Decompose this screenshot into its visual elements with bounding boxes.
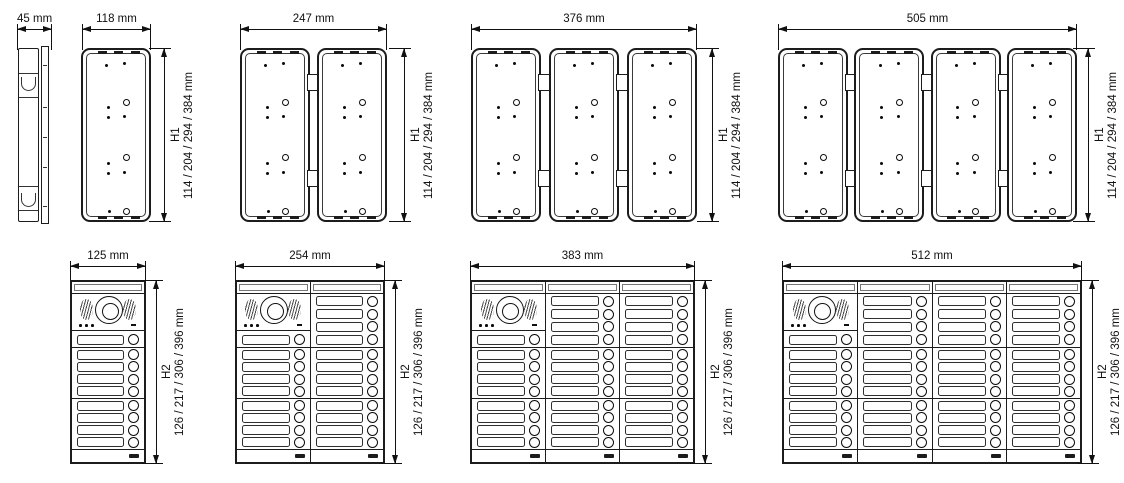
knockout-mark [677, 216, 686, 219]
led-indicators [244, 324, 259, 327]
name-plate [863, 386, 911, 396]
call-button [529, 400, 540, 411]
camera-lens-icon [260, 296, 288, 324]
knockout-mark [367, 51, 376, 54]
panel-top-strip [933, 282, 1006, 294]
name-plate [863, 425, 911, 435]
knockout-mark [1040, 51, 1049, 54]
button-section [237, 348, 310, 399]
call-button-row [472, 361, 545, 372]
call-button [603, 321, 614, 332]
led-dot-icon [91, 324, 94, 327]
name-plate [551, 309, 599, 319]
name-plate [863, 401, 911, 411]
call-button-row [311, 309, 384, 320]
panel-bottom-strip [620, 450, 693, 462]
call-button-row [237, 412, 310, 423]
dimension-line [17, 29, 52, 30]
name-plate [789, 413, 837, 423]
screw-ring-hole [669, 99, 676, 106]
knockout-mark [334, 216, 343, 219]
knockout-mark [811, 216, 820, 219]
box-inner-frame [554, 53, 614, 217]
camera-column [72, 282, 144, 462]
call-button [841, 361, 852, 372]
single-button-section [237, 331, 310, 348]
knockout-mark [98, 216, 107, 219]
height-label: H2 [710, 280, 723, 464]
call-button [1064, 349, 1075, 360]
fixing-hole [267, 210, 270, 213]
call-button [677, 334, 688, 345]
call-button-row [933, 412, 1006, 423]
call-button [990, 296, 1001, 307]
name-plate [316, 437, 364, 447]
knockout-mark [887, 216, 896, 219]
call-button-row [858, 334, 931, 345]
flush-mount-box [317, 48, 387, 222]
screw-ring-hole [282, 154, 289, 161]
call-button-row [933, 386, 1006, 397]
call-button [677, 361, 688, 372]
call-button [367, 361, 378, 372]
call-button-row [311, 334, 384, 345]
call-button [841, 425, 852, 436]
fixing-hole [879, 64, 882, 67]
fixing-hole [123, 115, 126, 118]
fixing-hole [973, 171, 976, 174]
single-button-section [472, 331, 545, 348]
brand-logo-mark [530, 454, 540, 458]
call-button [1064, 374, 1075, 385]
call-button-row [546, 361, 619, 372]
call-button-row [620, 400, 693, 411]
height-values-label: 126 / 217 / 306 / 396 mm [413, 280, 426, 464]
call-button-row [546, 374, 619, 385]
call-button [603, 400, 614, 411]
call-button [916, 374, 927, 385]
call-button-row [311, 349, 384, 360]
call-button-row [784, 437, 857, 448]
led-dot-icon [491, 324, 494, 327]
name-plate [477, 335, 525, 345]
dimension-label: 45 mm [17, 13, 52, 26]
knockout-mark [947, 51, 956, 54]
call-button-row [858, 309, 931, 320]
knockout-mark [504, 51, 513, 54]
dimension-line [82, 29, 151, 30]
camera-lens-icon [808, 296, 836, 324]
name-plate [551, 386, 599, 396]
call-button-row [933, 437, 1006, 448]
call-button-row [933, 296, 1006, 307]
name-plate [938, 401, 986, 411]
name-plate [625, 386, 673, 396]
screw-ring-hole [282, 208, 289, 215]
led-dot-icon [256, 324, 259, 327]
buttons-column [933, 282, 1007, 462]
screw-ring-hole [896, 154, 903, 161]
fixing-hole [575, 106, 578, 109]
box-inner-frame [783, 53, 843, 217]
name-plate [477, 401, 525, 411]
name-plate [789, 350, 837, 360]
name-plate [789, 425, 837, 435]
box-inner-frame [1012, 53, 1072, 217]
name-plate [316, 350, 364, 360]
led-dot-icon [791, 324, 794, 327]
box-group [778, 48, 1077, 222]
box-connector [924, 48, 930, 222]
button-section [620, 399, 693, 450]
call-button [529, 425, 540, 436]
name-plate [1012, 335, 1060, 345]
knockout-mark [131, 216, 140, 219]
call-button [603, 334, 614, 345]
dimension-label: 118 mm [82, 13, 151, 26]
call-button [916, 412, 927, 423]
call-button [128, 386, 139, 397]
name-plate [1012, 401, 1060, 411]
knockout-mark [904, 51, 913, 54]
led-dot-icon [244, 324, 247, 327]
call-button [367, 412, 378, 423]
call-button-row [620, 361, 693, 372]
button-section [933, 399, 1006, 450]
call-button-row [784, 412, 857, 423]
name-plate [477, 437, 525, 447]
call-button [529, 361, 540, 372]
name-plate [242, 362, 290, 372]
call-button-row [237, 437, 310, 448]
call-button-row [72, 374, 144, 385]
button-section [237, 399, 310, 450]
name-plate [625, 413, 673, 423]
call-button [677, 400, 688, 411]
button-section [620, 294, 693, 348]
name-plate [77, 401, 124, 411]
fixing-hole [513, 171, 516, 174]
call-button-row [858, 386, 931, 397]
button-section [546, 294, 619, 348]
name-plate [551, 350, 599, 360]
dimension-label: 376 mm [471, 13, 697, 26]
speaker-grille-icon [245, 299, 258, 320]
name-plate [477, 386, 525, 396]
call-button [529, 437, 540, 448]
knockout-mark [504, 216, 513, 219]
call-button-row [311, 425, 384, 436]
panel-bottom-strip [237, 450, 310, 462]
dimension-label: 125 mm [70, 250, 146, 263]
name-plate [316, 374, 364, 384]
knockout-mark [1040, 216, 1049, 219]
led-dot-icon [485, 324, 488, 327]
call-button-row [311, 321, 384, 332]
name-plate [938, 296, 986, 306]
call-button [1064, 309, 1075, 320]
call-button-row [1007, 412, 1080, 423]
call-button-row [858, 400, 931, 411]
name-plate [242, 374, 290, 384]
box-inner-frame [859, 53, 919, 217]
panel-top-strip [311, 282, 384, 294]
call-button [841, 334, 852, 345]
name-plate [477, 362, 525, 372]
call-button-row [858, 296, 931, 307]
call-button-row [1007, 334, 1080, 345]
name-plate [789, 374, 837, 384]
call-button [677, 374, 688, 385]
buttons-column [858, 282, 932, 462]
button-section [546, 348, 619, 399]
call-button-row [620, 309, 693, 320]
call-button-row [237, 425, 310, 436]
entry-panel [782, 280, 1082, 464]
call-button-row [784, 374, 857, 385]
call-button [990, 349, 1001, 360]
fixing-hole [576, 210, 579, 213]
camera-column [237, 282, 311, 462]
buttons-column [620, 282, 693, 462]
knockout-mark [980, 216, 989, 219]
led-indicators [79, 324, 94, 327]
knockout-mark [257, 216, 266, 219]
call-button [916, 334, 927, 345]
panel-bottom-strip [1007, 450, 1080, 462]
name-plate [477, 413, 525, 423]
knockout-mark [1057, 216, 1066, 219]
name-plate [938, 413, 986, 423]
call-button-row [1007, 425, 1080, 436]
box-inner-frame [632, 53, 692, 217]
knockout-mark [795, 216, 804, 219]
speaker-grille-icon [793, 299, 806, 320]
knockout-mark [1057, 51, 1066, 54]
camera-column [784, 282, 858, 462]
button-section [858, 399, 931, 450]
call-button-row [472, 374, 545, 385]
knockout-mark [334, 51, 343, 54]
call-button-row [237, 400, 310, 411]
name-plate [242, 425, 290, 435]
led-dot-icon [479, 324, 482, 327]
fixing-hole [804, 162, 807, 165]
box-inner-frame [322, 53, 382, 217]
call-button [367, 437, 378, 448]
camera-speaker-module [784, 294, 857, 331]
call-button-row [933, 374, 1006, 385]
screw-ring-hole [820, 154, 827, 161]
height-label: H1 [410, 48, 423, 222]
fixing-hole [266, 106, 269, 109]
speaker-grille-icon [481, 299, 494, 320]
button-section [858, 348, 931, 399]
box-connector [541, 48, 549, 222]
name-plate [77, 374, 124, 384]
button-section [311, 294, 384, 348]
call-button-row [311, 374, 384, 385]
screw-ring-hole [896, 208, 903, 215]
call-button-row [784, 400, 857, 411]
speaker-grille-icon [836, 299, 849, 320]
led-dot-icon [79, 324, 82, 327]
width-dimension: 505 mm [778, 13, 1077, 53]
call-button [990, 361, 1001, 372]
screw-ring-hole [591, 154, 598, 161]
knockout-mark [677, 51, 686, 54]
name-plate [863, 413, 911, 423]
button-section [1007, 399, 1080, 450]
name-plate [863, 309, 911, 319]
call-button [916, 386, 927, 397]
height-values-label: 126 / 217 / 306 / 396 mm [1110, 280, 1123, 464]
name-plate [77, 437, 124, 447]
height-values-label: 126 / 217 / 306 / 396 mm [174, 280, 187, 464]
name-plate [625, 350, 673, 360]
panel-bottom-strip [546, 450, 619, 462]
call-button-row [933, 334, 1006, 345]
dimension-label: 505 mm [778, 13, 1077, 26]
panel-top-strip [858, 282, 931, 294]
brand-logo-mark [991, 454, 1001, 458]
name-plate [863, 296, 911, 306]
call-button-row [620, 334, 693, 345]
knockout-mark [887, 51, 896, 54]
panel-top-strip [546, 282, 619, 294]
name-plate [938, 425, 986, 435]
call-button-row [72, 425, 144, 436]
screw-ring-hole [513, 208, 520, 215]
brand-logo-mark [295, 454, 305, 458]
call-button-row [472, 386, 545, 397]
entry-panel [235, 280, 385, 464]
call-button-row [620, 425, 693, 436]
single-button-section [72, 331, 144, 348]
knockout-mark [644, 216, 653, 219]
call-button-row [237, 374, 310, 385]
name-plate [477, 425, 525, 435]
button-section [784, 348, 857, 399]
button-section [933, 294, 1006, 348]
width-dimension: 118 mm [82, 13, 151, 53]
fixing-hole [654, 210, 657, 213]
button-section [72, 399, 144, 450]
camera-speaker-module [72, 294, 144, 331]
name-plate [242, 386, 290, 396]
box-side-view [18, 46, 49, 224]
knockout-mark [488, 216, 497, 219]
call-button [841, 400, 852, 411]
fixing-hole [497, 106, 500, 109]
fixing-hole [344, 210, 347, 213]
knockout-mark [599, 216, 608, 219]
name-plate [242, 335, 290, 345]
led-dot-icon [803, 324, 806, 327]
flush-mount-box [627, 48, 697, 222]
call-button-row [858, 374, 931, 385]
fixing-hole [107, 106, 110, 109]
knockout-mark [980, 51, 989, 54]
fixing-hole [1049, 171, 1052, 174]
dimension-drawing-sheet: 45 mm 118 mm H1 114 / 204 / 294 / 384 mm [0, 0, 1124, 483]
flush-mount-box [854, 48, 924, 222]
name-plate [242, 350, 290, 360]
call-button-row [311, 296, 384, 307]
call-button-row [620, 349, 693, 360]
name-plate [77, 350, 124, 360]
name-plate [242, 413, 290, 423]
fixing-hole [897, 115, 900, 118]
flush-mount-box [81, 48, 151, 222]
name-plate [77, 362, 124, 372]
box-group [471, 48, 697, 222]
width-dimension: 376 mm [471, 13, 697, 53]
speaker-grille-icon [123, 299, 136, 320]
fixing-hole [955, 64, 958, 67]
button-section [472, 399, 545, 450]
knockout-mark [871, 216, 880, 219]
call-button-row [858, 425, 931, 436]
call-button [677, 309, 688, 320]
brand-logo-mark [129, 454, 139, 458]
camera-lens-inner-icon [267, 303, 284, 320]
call-button-row [933, 321, 1006, 332]
call-button [677, 321, 688, 332]
knockout-mark [582, 216, 591, 219]
call-button-row [858, 361, 931, 372]
entry-panel [470, 280, 695, 464]
call-button-row [784, 361, 857, 372]
name-plate [316, 362, 364, 372]
side-view-front-plate [41, 46, 49, 224]
fixing-hole [897, 171, 900, 174]
call-button-row [72, 400, 144, 411]
name-plate [863, 374, 911, 384]
name-plate [316, 322, 364, 332]
call-button [916, 400, 927, 411]
box-inner-frame [86, 53, 146, 217]
call-button [603, 412, 614, 423]
screw-ring-hole [123, 99, 130, 106]
call-button-row [858, 321, 931, 332]
panel-top-strip [784, 282, 857, 294]
call-button-row [472, 400, 545, 411]
call-button-row [72, 349, 144, 360]
call-button [677, 425, 688, 436]
screw-ring-hole [513, 99, 520, 106]
name-plate [316, 386, 364, 396]
call-button [1064, 386, 1075, 397]
call-button [367, 309, 378, 320]
button-section [546, 399, 619, 450]
call-button [1064, 425, 1075, 436]
call-button [128, 361, 139, 372]
screw-ring-hole [669, 154, 676, 161]
knockout-mark [488, 51, 497, 54]
screw-ring-hole [359, 99, 366, 106]
fixing-hole [653, 106, 656, 109]
name-plate [551, 425, 599, 435]
flush-mount-box [931, 48, 1001, 222]
call-button-row [72, 361, 144, 372]
call-button [677, 386, 688, 397]
box-connector [310, 48, 317, 222]
call-button [841, 386, 852, 397]
call-button [294, 437, 305, 448]
camera-lens-inner-icon [814, 303, 831, 320]
call-button [1064, 437, 1075, 448]
